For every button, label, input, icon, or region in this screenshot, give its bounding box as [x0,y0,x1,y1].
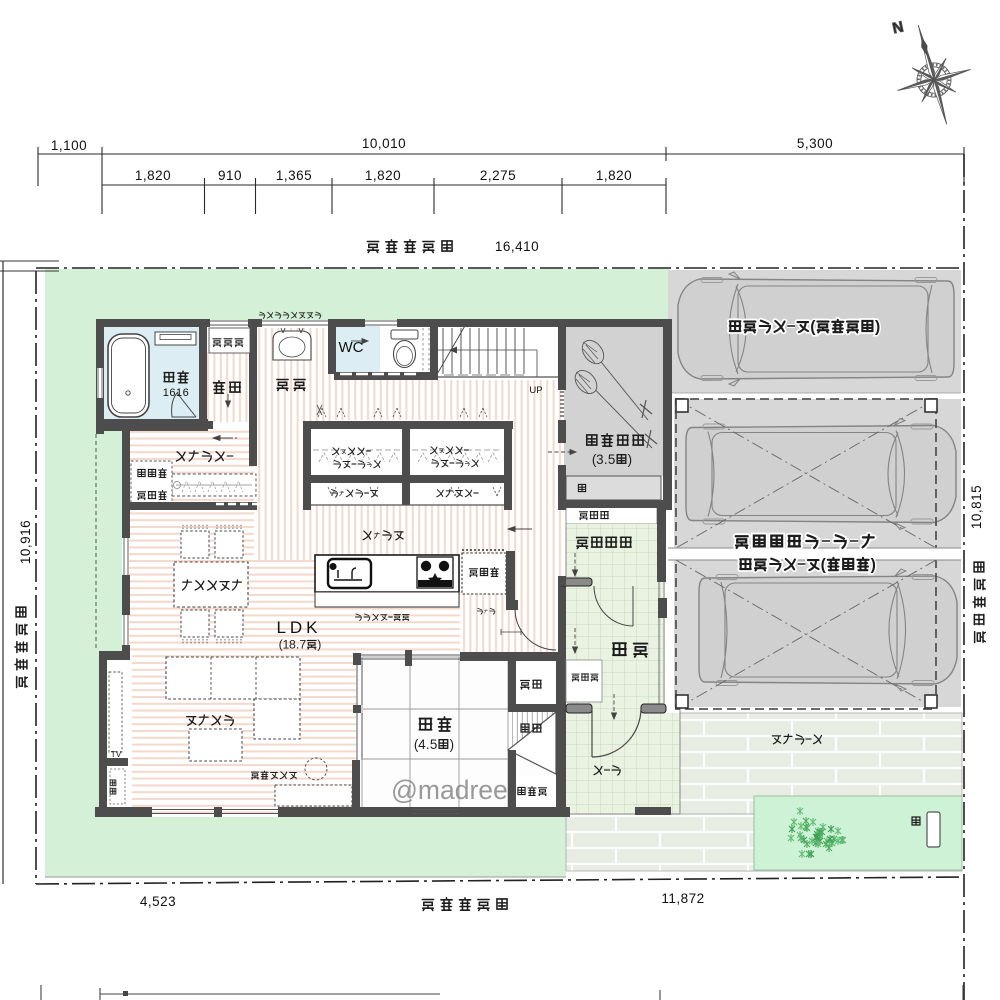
svg-text:(: ( [821,557,827,574]
svg-text:): ) [871,557,876,574]
svg-text:LDK: LDK [276,618,321,637]
svg-text:10,815: 10,815 [969,485,984,529]
svg-text:TV: TV [111,749,122,759]
svg-text:4,523: 4,523 [140,894,176,909]
svg-text:1,820: 1,820 [135,168,171,183]
svg-text:5,300: 5,300 [797,136,833,151]
svg-text:10,010: 10,010 [362,136,406,151]
svg-text:UP: UP [529,385,542,396]
svg-text:1616: 1616 [163,387,189,399]
svg-text:1,820: 1,820 [596,168,632,183]
svg-text:5: 5 [608,452,615,467]
svg-text:16,410: 16,410 [495,239,539,254]
svg-text:): ) [450,737,454,752]
svg-text:11,872: 11,872 [661,891,704,906]
svg-text:3: 3 [596,452,603,467]
svg-text:): ) [317,637,321,651]
svg-text:2,275: 2,275 [480,168,516,183]
svg-text:1,820: 1,820 [365,168,401,183]
svg-text:5: 5 [430,737,437,752]
svg-text:1,100: 1,100 [51,138,87,153]
svg-text:@madree: @madree [391,775,508,805]
svg-text:): ) [875,319,880,336]
svg-text:910: 910 [218,168,242,183]
svg-text:): ) [628,452,632,467]
svg-text:7: 7 [299,637,306,651]
svg-text:(: ( [810,319,816,336]
svg-text:1,365: 1,365 [276,168,312,183]
svg-text:WC: WC [339,339,364,356]
svg-text:10,916: 10,916 [18,520,33,564]
